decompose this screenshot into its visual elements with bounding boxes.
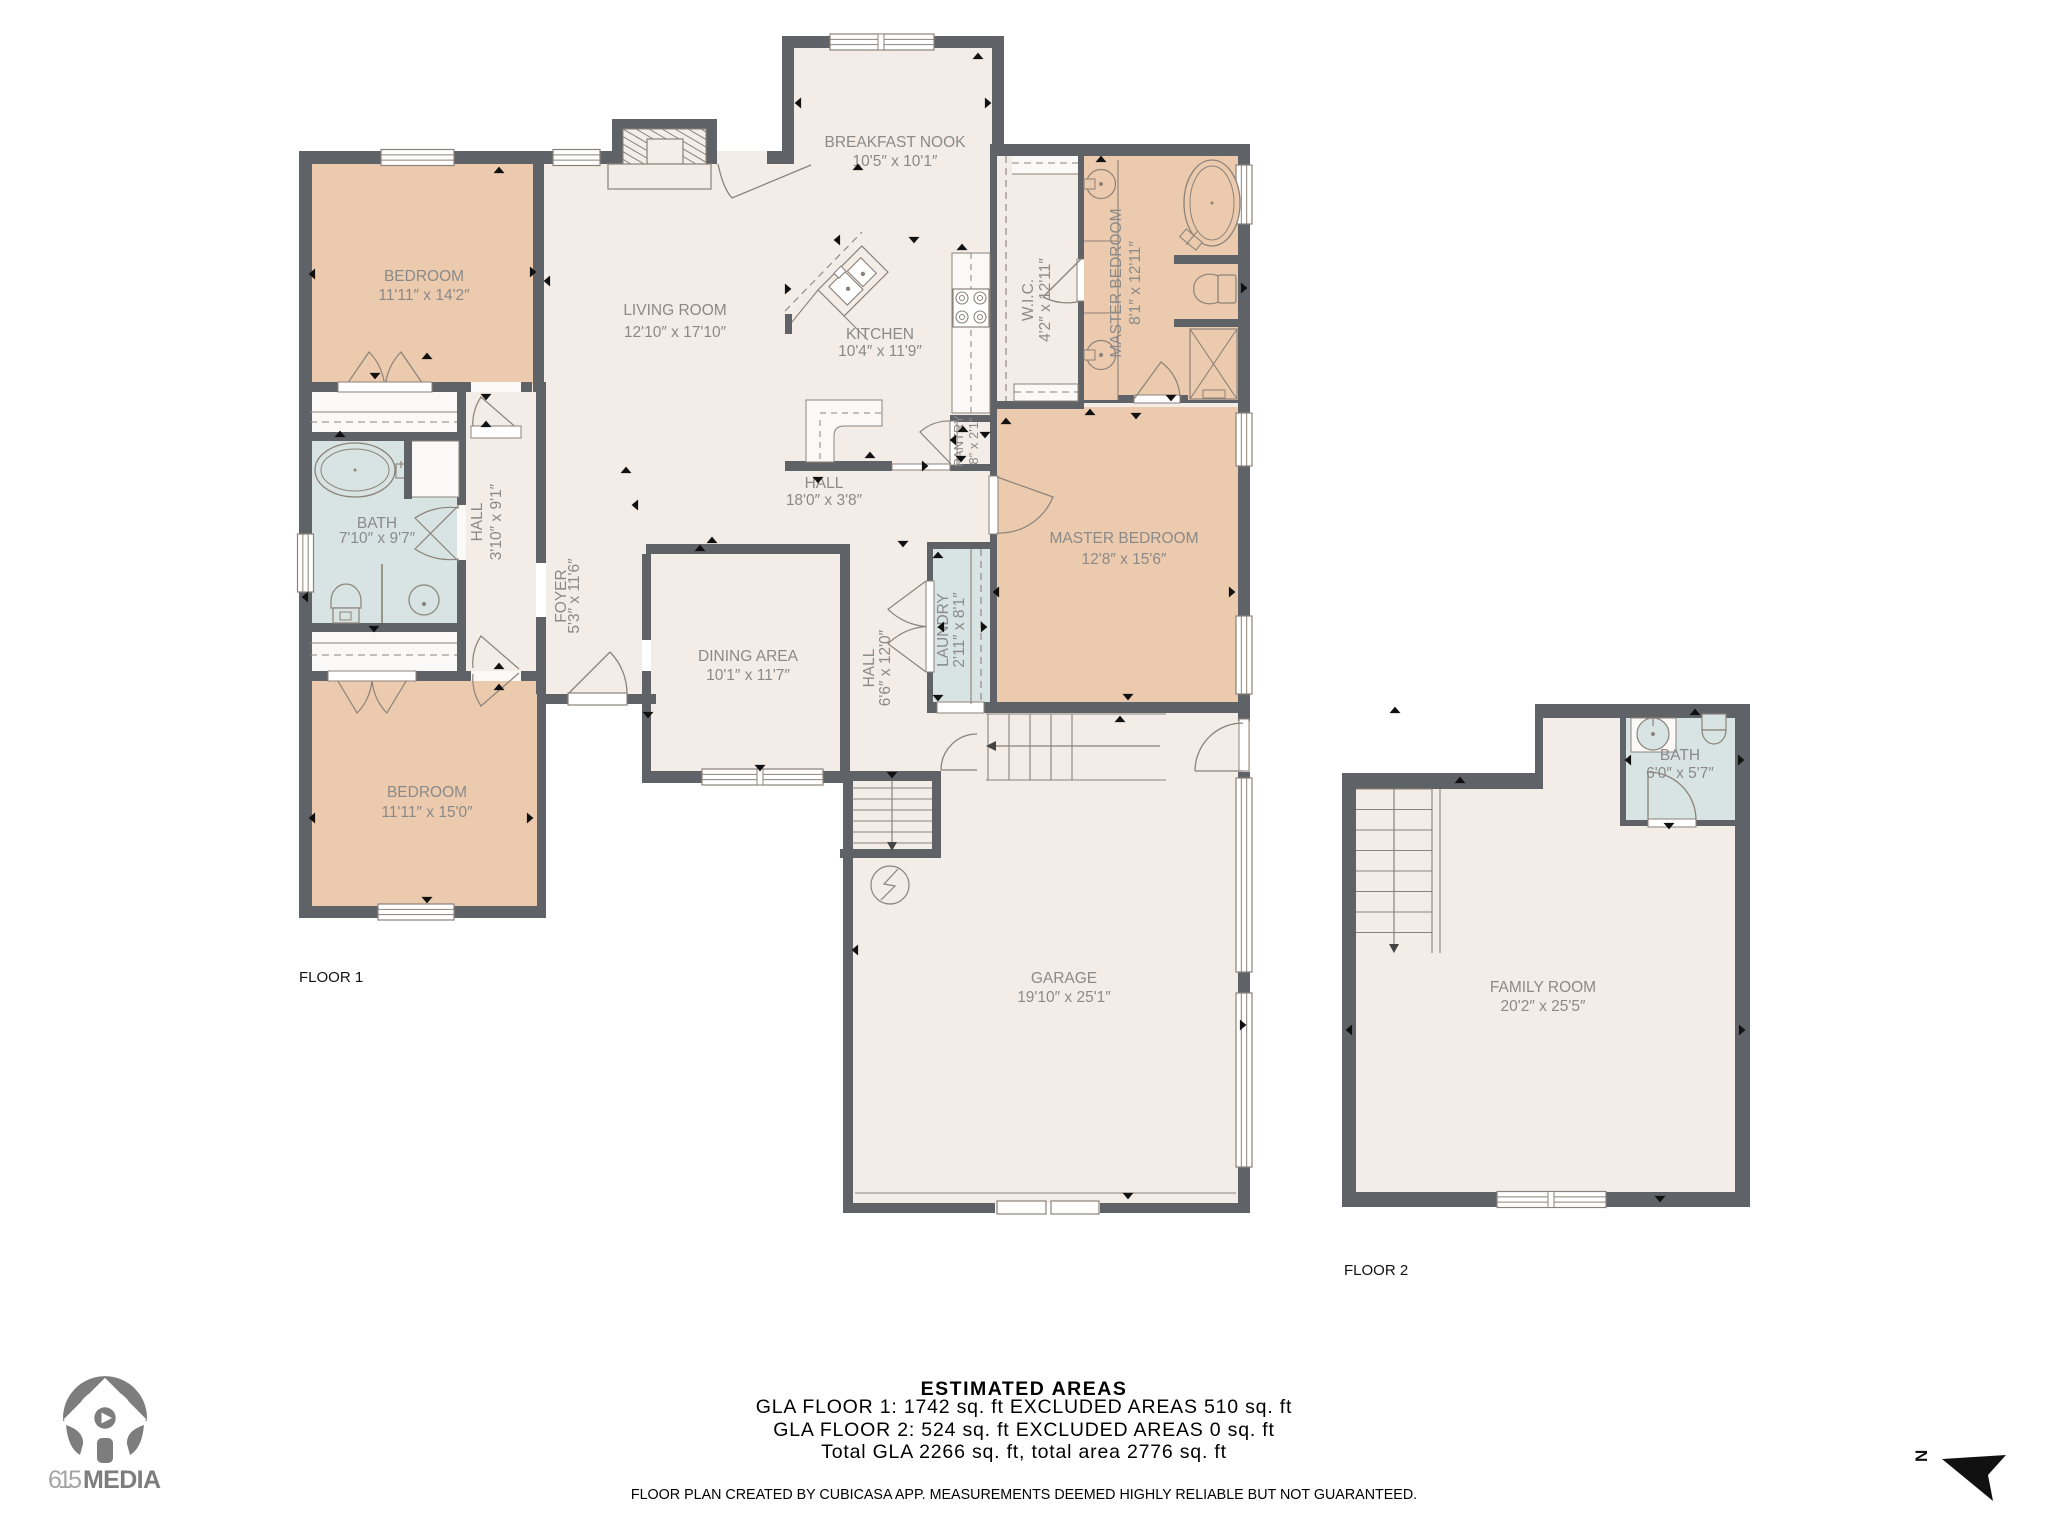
svg-text:FLOOR 1: FLOOR 1 xyxy=(299,969,363,986)
svg-text:MASTER BEDROOM: MASTER BEDROOM xyxy=(1050,530,1199,547)
svg-text:BEDROOM: BEDROOM xyxy=(387,784,467,801)
svg-text:BEDROOM: BEDROOM xyxy=(384,268,464,285)
svg-text:19'10″ x 25'1″: 19'10″ x 25'1″ xyxy=(1017,989,1111,1006)
svg-text:11'11″ x 14'2″: 11'11″ x 14'2″ xyxy=(378,287,470,304)
svg-text:10'4″ x 11'9″: 10'4″ x 11'9″ xyxy=(838,343,922,360)
svg-text:8'1″ x 12'11″: 8'1″ x 12'11″ xyxy=(1127,241,1144,325)
svg-text:BREAKFAST NOOK: BREAKFAST NOOK xyxy=(825,134,967,151)
svg-text:18'0″ x 3'8″: 18'0″ x 3'8″ xyxy=(786,492,863,509)
svg-text:6'6″ x 12'0″: 6'6″ x 12'0″ xyxy=(877,629,894,706)
svg-text:6'0″ x 5'7″: 6'0″ x 5'7″ xyxy=(1646,765,1714,782)
svg-text:4'2″ x 12'11″: 4'2″ x 12'11″ xyxy=(1037,258,1054,342)
svg-text:615: 615 xyxy=(48,1466,82,1494)
svg-text:2'11″ x 8'1″: 2'11″ x 8'1″ xyxy=(951,592,968,668)
svg-text:12'8″ x 15'6″: 12'8″ x 15'6″ xyxy=(1082,551,1167,568)
svg-text:HALL: HALL xyxy=(469,502,486,541)
svg-text:11'11″ x 15'0″: 11'11″ x 15'0″ xyxy=(381,804,473,821)
svg-text:MEDIA: MEDIA xyxy=(83,1466,161,1494)
svg-text:BATH: BATH xyxy=(1660,747,1700,764)
svg-text:12'10″ x 17'10″: 12'10″ x 17'10″ xyxy=(624,324,727,341)
svg-text:8″ x 2'1″: 8″ x 2'1″ xyxy=(966,417,981,464)
svg-text:GARAGE: GARAGE xyxy=(1031,970,1097,987)
svg-text:Total GLA 2266 sq. ft, total a: Total GLA 2266 sq. ft, total area 2776 s… xyxy=(821,1441,1227,1463)
svg-text:LIVING ROOM: LIVING ROOM xyxy=(623,302,726,319)
svg-text:N: N xyxy=(1912,1450,1931,1462)
svg-text:FLOOR PLAN CREATED BY CUBICASA: FLOOR PLAN CREATED BY CUBICASA APP. MEAS… xyxy=(631,1487,1417,1503)
svg-text:KITCHEN: KITCHEN xyxy=(846,326,914,343)
svg-text:10'5″ x 10'1″: 10'5″ x 10'1″ xyxy=(853,153,938,170)
svg-text:5'3″ x 11'6″: 5'3″ x 11'6″ xyxy=(566,558,583,634)
svg-text:W.I.C.: W.I.C. xyxy=(1020,279,1037,321)
svg-text:7'10″ x 9'7″: 7'10″ x 9'7″ xyxy=(339,530,416,547)
svg-text:HALL: HALL xyxy=(861,648,878,687)
svg-text:MASTER BEDROOM: MASTER BEDROOM xyxy=(1108,209,1125,358)
svg-text:FLOOR 2: FLOOR 2 xyxy=(1344,1262,1408,1279)
svg-text:DINING AREA: DINING AREA xyxy=(698,648,799,665)
svg-text:GLA FLOOR 2: 524 sq. ft EXCLUD: GLA FLOOR 2: 524 sq. ft EXCLUDED AREAS 0… xyxy=(773,1419,1274,1441)
svg-text:20'2″ x 25'5″: 20'2″ x 25'5″ xyxy=(1501,998,1586,1015)
svg-text:HALL: HALL xyxy=(805,475,844,492)
svg-text:10'1″ x 11'7″: 10'1″ x 11'7″ xyxy=(706,667,790,684)
svg-text:GLA FLOOR 1: 1742 sq. ft EXCLU: GLA FLOOR 1: 1742 sq. ft EXCLUDED AREAS … xyxy=(756,1396,1292,1418)
svg-text:3'10″ x 9'1″: 3'10″ x 9'1″ xyxy=(488,483,505,560)
svg-text:FAMILY ROOM: FAMILY ROOM xyxy=(1490,979,1596,996)
